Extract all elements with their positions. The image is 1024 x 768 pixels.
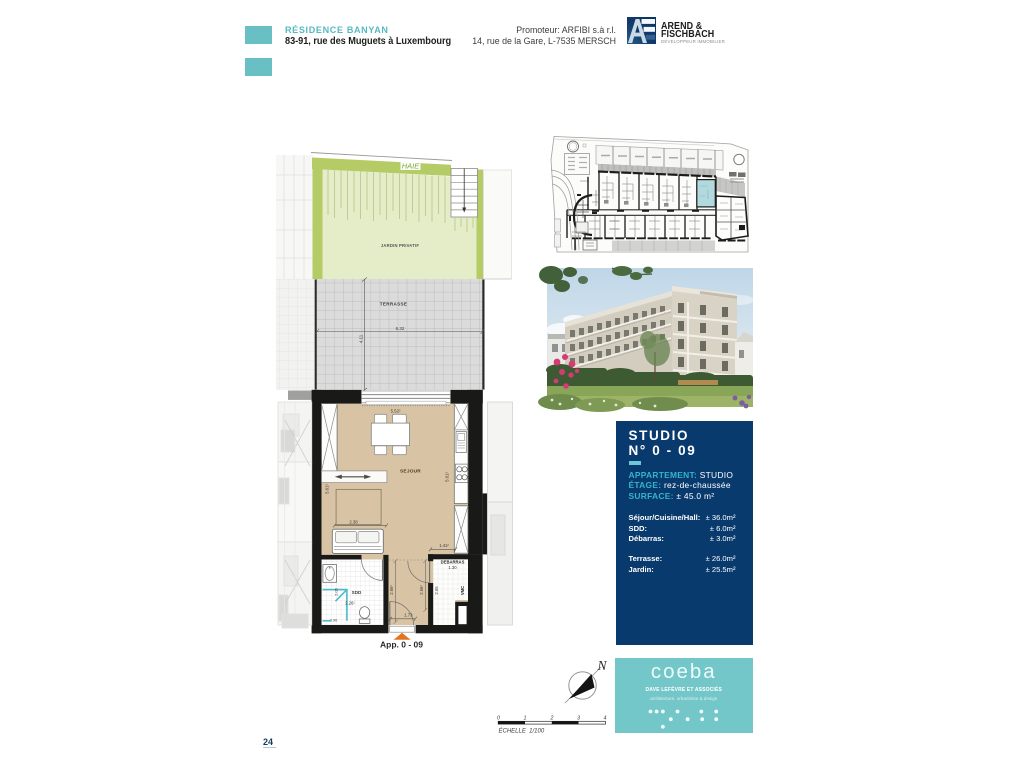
svg-text:1.73: 1.73 bbox=[404, 612, 413, 617]
svg-text:2.66²: 2.66² bbox=[389, 585, 394, 595]
svg-text:TERRASSE: TERRASSE bbox=[380, 302, 407, 307]
svg-text:1.41²: 1.41² bbox=[439, 543, 449, 548]
svg-text:2.38: 2.38 bbox=[349, 519, 358, 524]
svg-text:5.52²: 5.52² bbox=[391, 408, 401, 413]
svg-text:5.61²: 5.61² bbox=[445, 472, 450, 482]
svg-text:JARDIN PRIVATIF: JARDIN PRIVATIF bbox=[381, 243, 419, 248]
svg-text:N: N bbox=[597, 658, 608, 673]
svg-text:4.11: 4.11 bbox=[359, 334, 364, 343]
svg-text:2.05: 2.05 bbox=[334, 587, 339, 596]
svg-text:6.32: 6.32 bbox=[396, 326, 405, 331]
svg-text:1: 1 bbox=[524, 716, 527, 722]
svg-text:0: 0 bbox=[497, 716, 500, 722]
svg-text:2.26²: 2.26² bbox=[345, 600, 355, 605]
svg-text:ÉCHELLE 1/100: ÉCHELLE 1/100 bbox=[499, 728, 545, 735]
svg-text:HAIE: HAIE bbox=[402, 161, 421, 170]
svg-text:SDD: SDD bbox=[352, 590, 362, 595]
svg-text:0.90: 0.90 bbox=[330, 619, 337, 623]
svg-text:SEJOUR: SEJOUR bbox=[400, 469, 421, 475]
svg-text:5.61²: 5.61² bbox=[324, 484, 329, 494]
svg-text:4: 4 bbox=[604, 716, 607, 722]
svg-text:App. 0 - 09: App. 0 - 09 bbox=[380, 639, 423, 649]
svg-text:3: 3 bbox=[577, 716, 580, 722]
svg-text:VMC: VMC bbox=[460, 586, 465, 595]
svg-text:2: 2 bbox=[550, 716, 554, 722]
svg-text:2.66²: 2.66² bbox=[419, 585, 424, 595]
svg-text:2.55: 2.55 bbox=[434, 586, 439, 595]
svg-text:1.30: 1.30 bbox=[448, 565, 457, 570]
